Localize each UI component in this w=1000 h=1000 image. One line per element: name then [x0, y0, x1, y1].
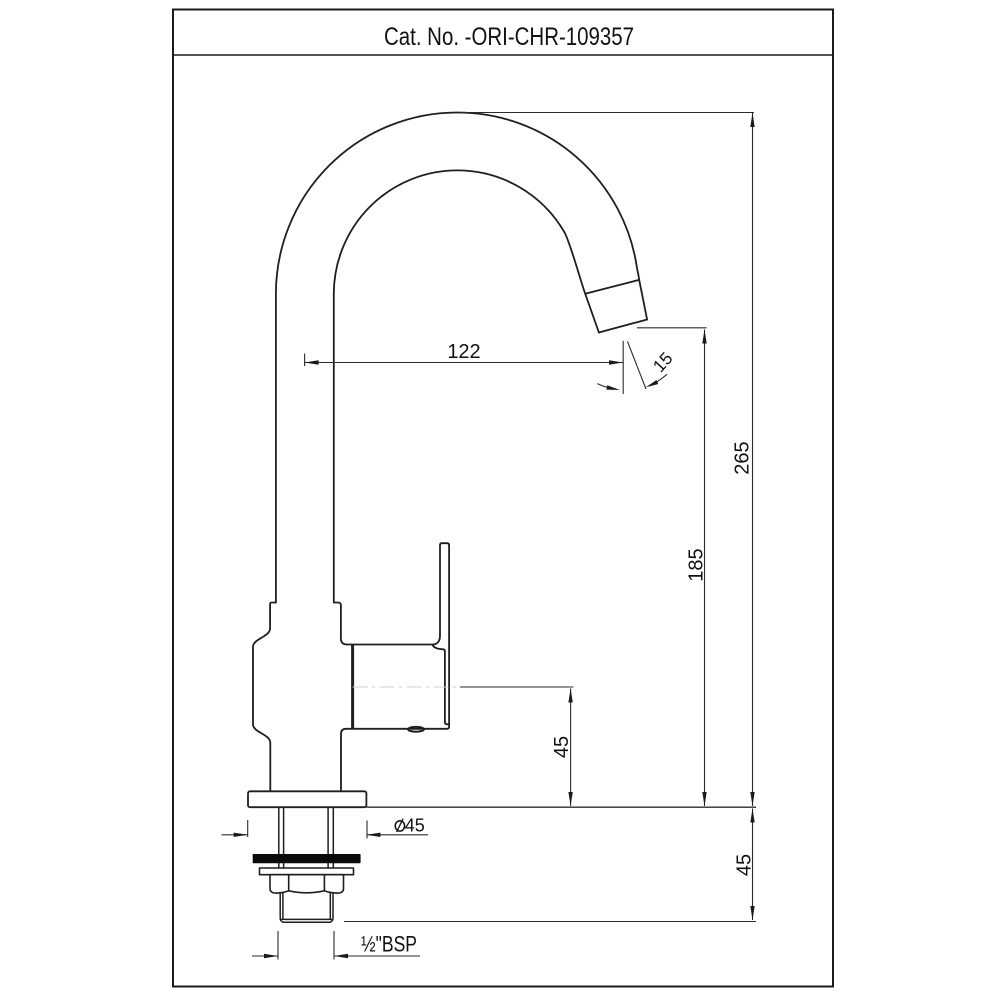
svg-text:Cat. No. -ORI-CHR-109357: Cat. No. -ORI-CHR-109357 — [384, 23, 634, 51]
svg-text:45: 45 — [551, 736, 573, 758]
svg-text:½"BSP: ½"BSP — [361, 932, 417, 957]
svg-text:45: 45 — [734, 854, 756, 876]
svg-text:265: 265 — [732, 441, 754, 474]
svg-text:122: 122 — [447, 341, 480, 363]
svg-text:185: 185 — [686, 548, 708, 581]
svg-text:45: 45 — [405, 816, 425, 836]
